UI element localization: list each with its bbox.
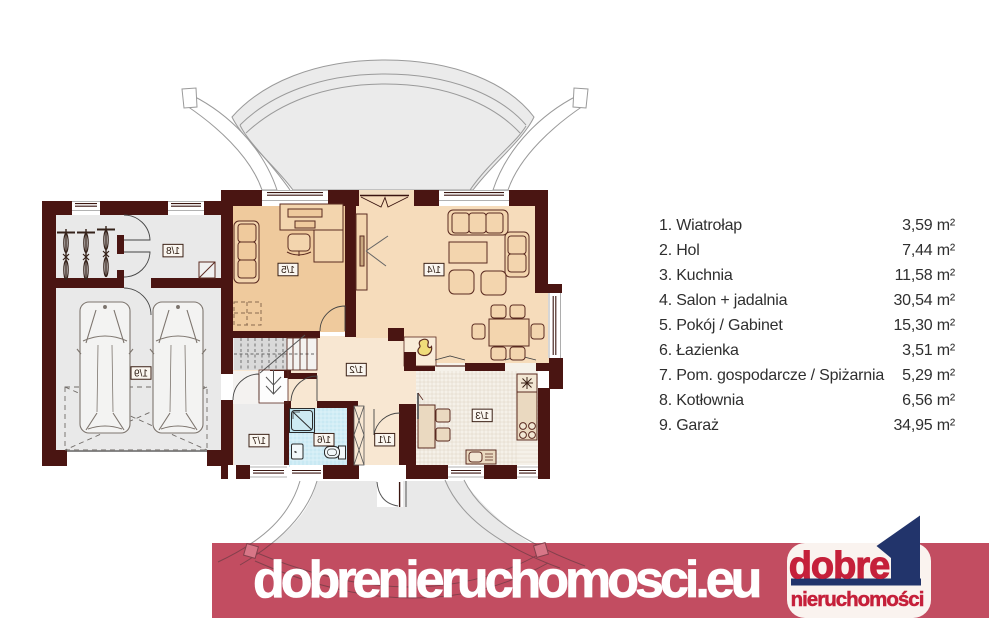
svg-text:3. Kuchnia: 3. Kuchnia bbox=[659, 267, 733, 284]
svg-text:30,54 m²: 30,54 m² bbox=[893, 292, 955, 309]
svg-text:3,51 m²: 3,51 m² bbox=[902, 342, 956, 359]
svg-text:2. Hol: 2. Hol bbox=[659, 242, 700, 259]
svg-text:dobre: dobre bbox=[789, 545, 890, 587]
svg-text:15,30 m²: 15,30 m² bbox=[893, 317, 955, 334]
svg-text:dobrenieruchomosci.eu: dobrenieruchomosci.eu bbox=[253, 551, 760, 609]
svg-text:1/7: 1/7 bbox=[252, 436, 266, 447]
svg-text:6,56 m²: 6,56 m² bbox=[902, 392, 956, 409]
svg-text:1/9: 1/9 bbox=[134, 369, 148, 380]
svg-text:1/5: 1/5 bbox=[281, 265, 295, 276]
svg-text:5,29 m²: 5,29 m² bbox=[902, 367, 956, 384]
svg-text:1/4: 1/4 bbox=[427, 265, 441, 276]
svg-text:6. Łazienka: 6. Łazienka bbox=[659, 342, 739, 359]
svg-text:3,59 m²: 3,59 m² bbox=[902, 217, 956, 234]
svg-text:7. Pom. gospodarcze / Spiżarni: 7. Pom. gospodarcze / Spiżarnia bbox=[659, 367, 884, 384]
svg-text:9. Garaż: 9. Garaż bbox=[659, 417, 719, 434]
svg-text:7,44 m²: 7,44 m² bbox=[902, 242, 956, 259]
svg-text:8. Kotłownia: 8. Kotłownia bbox=[659, 392, 744, 409]
svg-text:nieruchomości: nieruchomości bbox=[791, 588, 924, 611]
svg-text:1/2: 1/2 bbox=[349, 365, 363, 376]
svg-text:34,95 m²: 34,95 m² bbox=[893, 417, 955, 434]
svg-text:1/6: 1/6 bbox=[317, 435, 331, 446]
svg-text:4. Salon + jadalnia: 4. Salon + jadalnia bbox=[659, 292, 788, 309]
svg-text:5. Pokój / Gabinet: 5. Pokój / Gabinet bbox=[659, 317, 783, 334]
svg-text:11,58 m²: 11,58 m² bbox=[895, 267, 956, 284]
svg-text:1. Wiatrołap: 1. Wiatrołap bbox=[659, 217, 742, 234]
svg-text:1/1: 1/1 bbox=[377, 435, 391, 446]
svg-text:1/3: 1/3 bbox=[475, 411, 489, 422]
svg-text:1/8: 1/8 bbox=[166, 246, 180, 257]
